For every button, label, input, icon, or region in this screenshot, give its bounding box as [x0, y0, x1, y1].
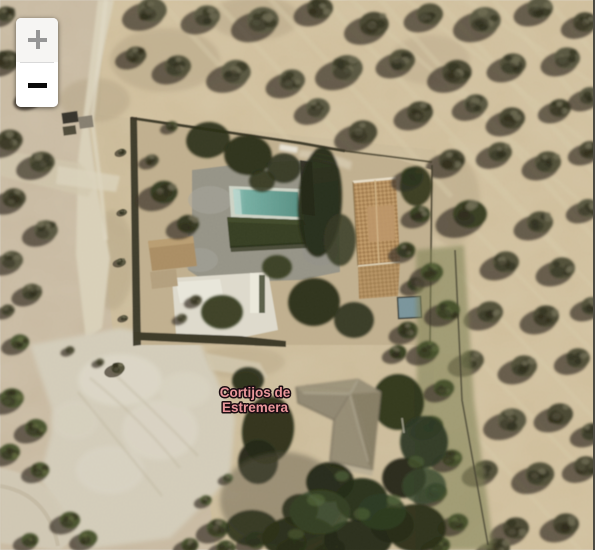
svg-text:Estremera: Estremera: [222, 400, 289, 415]
svg-text:Cortijos de: Cortijos de: [220, 385, 291, 400]
